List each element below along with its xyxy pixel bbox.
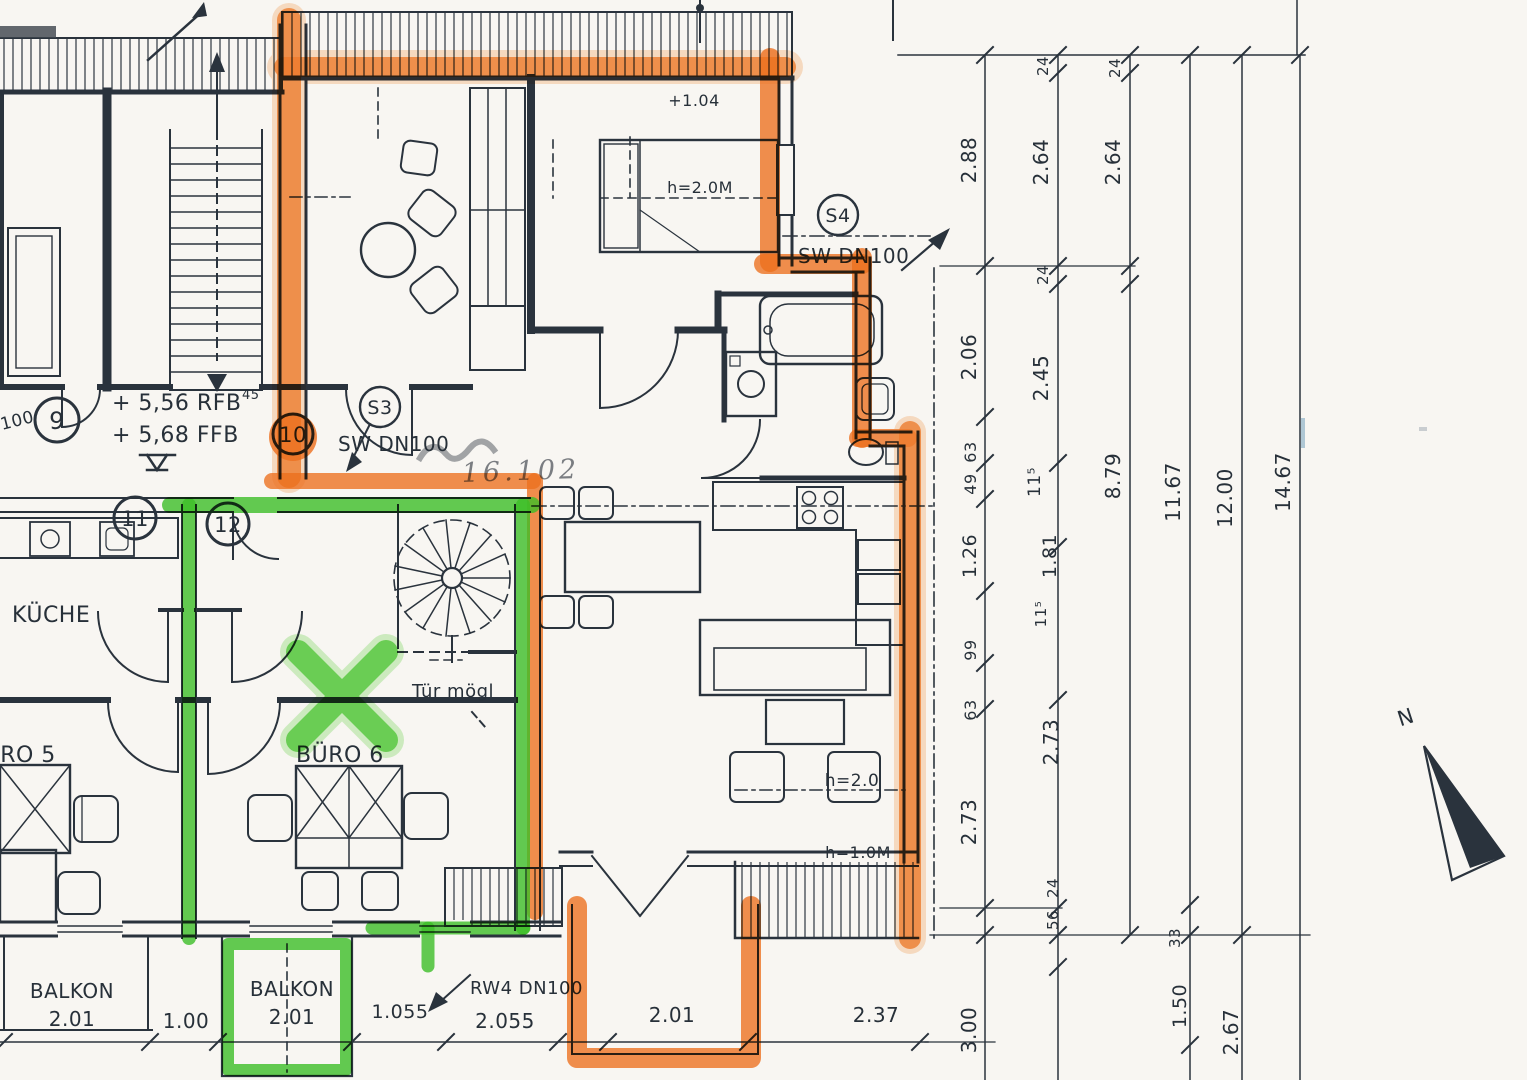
note-tuer-moegl: Tür mögl: [411, 681, 494, 702]
vdim-12-00: 12.00: [1213, 468, 1237, 528]
dim-2-37: 2.37: [853, 1003, 900, 1027]
balkon2-name: BALKON: [250, 977, 334, 1001]
floor-plan-drawing: Scanned attic floor plan (Dachgeschoss) …: [0, 0, 1527, 1080]
vdim-2-64a: 2.64: [1029, 139, 1053, 186]
pos-12: 12: [214, 513, 242, 537]
vdim-24a: 24: [1034, 56, 1052, 76]
vdim-24b: 24: [1034, 265, 1052, 285]
vdim-24d: 24: [1106, 58, 1124, 78]
vdim-33: 33: [1166, 928, 1184, 948]
balkon1-name: BALKON: [30, 979, 114, 1003]
dim-2-01: 2.01: [649, 1003, 696, 1027]
vdim-99: 99: [961, 639, 980, 660]
vdim-2-06: 2.06: [957, 334, 981, 381]
dim-2-055: 2.055: [475, 1009, 535, 1033]
vdim-1-81: 1.81: [1039, 534, 1061, 578]
vdim-2-73b: 2.73: [1039, 719, 1063, 766]
vdim-8-79: 8.79: [1101, 453, 1125, 500]
vdim-2-88: 2.88: [957, 137, 981, 184]
vdim-2-64b: 2.64: [1101, 139, 1125, 186]
vdim-3-00: 3.00: [957, 1007, 981, 1054]
floor-plan-scan: Scanned attic floor plan (Dachgeschoss) …: [0, 0, 1527, 1080]
dim-1-00: 1.00: [163, 1009, 210, 1033]
pos-9: 9: [49, 407, 65, 435]
note-plus104: +1.04: [668, 91, 720, 110]
s4-id: S4: [825, 205, 850, 227]
vdim-11-67: 11.67: [1161, 462, 1185, 522]
note-45: 45: [242, 388, 260, 403]
s3-label: SW DN100: [338, 432, 449, 456]
rw4-label: RW4 DN100: [470, 978, 583, 999]
balkon1-size: 2.01: [49, 1007, 96, 1031]
vdim-49: 49: [961, 473, 980, 494]
level-rfb: + 5,56 RFB: [112, 391, 241, 416]
vdim-63a: 63: [961, 441, 980, 462]
s3-id: S3: [367, 397, 392, 419]
vdim-115b: 11⁵: [1032, 601, 1050, 628]
vdim-2-73a: 2.73: [957, 799, 981, 846]
level-ffb: + 5,68 FFB: [112, 423, 239, 448]
vdim-2-67: 2.67: [1219, 1009, 1243, 1056]
pos-11: 11: [121, 507, 149, 531]
vdim-24c: 24: [1044, 878, 1062, 898]
vdim-1-50: 1.50: [1169, 984, 1191, 1028]
vdim-63b: 63: [961, 699, 980, 720]
vdim-56: 56: [1044, 910, 1062, 930]
note-h10m: h=1.0M: [825, 843, 891, 862]
vdim-14-67: 14.67: [1271, 452, 1295, 512]
vdim-1-26: 1.26: [959, 534, 981, 578]
note-h20m: h=2.0M: [667, 178, 733, 197]
vdim-115a: 11⁵: [1025, 467, 1045, 497]
room-kueche: KÜCHE: [12, 602, 90, 628]
dim-1-055: 1.055: [372, 1001, 429, 1023]
vdim-2-45: 2.45: [1029, 355, 1053, 402]
room-buero5: BÜRO 5: [0, 742, 56, 768]
balkon2-size: 2.01: [269, 1005, 316, 1029]
note-h20: h=2.0: [825, 771, 880, 791]
